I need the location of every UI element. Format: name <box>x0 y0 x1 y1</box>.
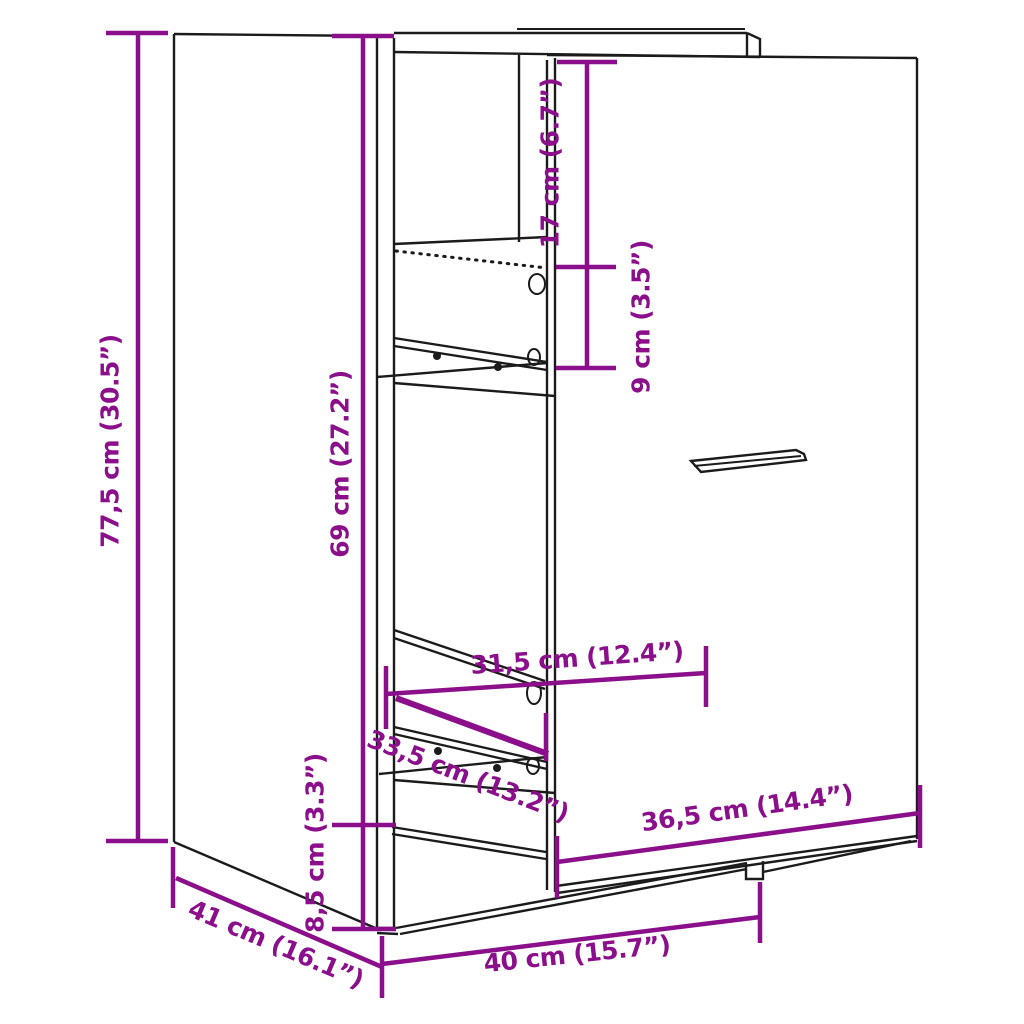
dimension-depth: 41 cm (16.1”) <box>173 847 382 998</box>
top-panel <box>394 29 760 57</box>
dimension-pullout-height: 69 cm (27.2”) <box>326 36 395 825</box>
bottom-board-edge-a <box>392 827 546 852</box>
dim-label-depth: 41 cm (16.1”) <box>184 894 368 994</box>
dim-label-pullout-height: 69 cm (27.2”) <box>326 370 355 558</box>
bottom-board-edge-b <box>392 834 546 859</box>
dim-label-top-section-height: 17 cm (6.7”) <box>536 78 565 249</box>
door-panel <box>547 55 917 893</box>
dimension-top-section-height: 17 cm (6.7”) <box>536 62 618 267</box>
door-handle <box>691 450 806 472</box>
dimension-overall-height: 77,5 cm (30.5”) <box>96 33 169 841</box>
dimension-front-panel-width: 36,5 cm (14.4”) <box>557 779 920 898</box>
shelf-1-dotted-edge <box>396 251 547 268</box>
door-bottom-edge-inner <box>557 841 917 893</box>
base-right-edge <box>763 841 911 872</box>
base-corner-edge-b <box>377 933 398 934</box>
dim-label-inner-depth: 31,5 cm (12.4”) <box>470 636 685 680</box>
dimension-shelf-spacing: 9 cm (3.5”) <box>556 240 656 394</box>
dim-label-overall-height: 77,5 cm (30.5”) <box>96 334 125 547</box>
rail-1-screw-a <box>433 352 441 360</box>
door-bottom-edge-outer <box>556 836 917 886</box>
rail-1-cross-edge <box>377 363 547 377</box>
dim-label-front-panel-width: 36,5 cm (14.4”) <box>639 779 854 837</box>
rail-1-hole <box>528 349 540 365</box>
dim-label-shelf-spacing: 9 cm (3.5”) <box>627 240 656 394</box>
shelf-1-edge <box>394 237 547 244</box>
cabinet-base <box>377 841 911 934</box>
dim-label-base-height: 8,5 cm (3.3”) <box>301 753 330 933</box>
dimension-base-height: 8,5 cm (3.3”) <box>301 753 397 933</box>
dim-label-width: 40 cm (15.7”) <box>482 930 672 978</box>
rail-1-screw-b <box>494 363 502 371</box>
rail-1-lower-edge <box>394 383 555 396</box>
door-handle-inner-line <box>694 456 801 466</box>
shelf-1-hole <box>529 274 545 294</box>
top-panel-end-cap <box>747 33 760 57</box>
door-top-edge <box>547 55 917 58</box>
dimension-diagram-canvas: 77,5 cm (30.5”) 69 cm (27.2”) 8,5 cm (3.… <box>0 0 1024 1024</box>
cabinet-dimension-drawing: 77,5 cm (30.5”) 69 cm (27.2”) 8,5 cm (3.… <box>0 0 1024 1024</box>
base-front-edge-outer <box>396 863 747 928</box>
